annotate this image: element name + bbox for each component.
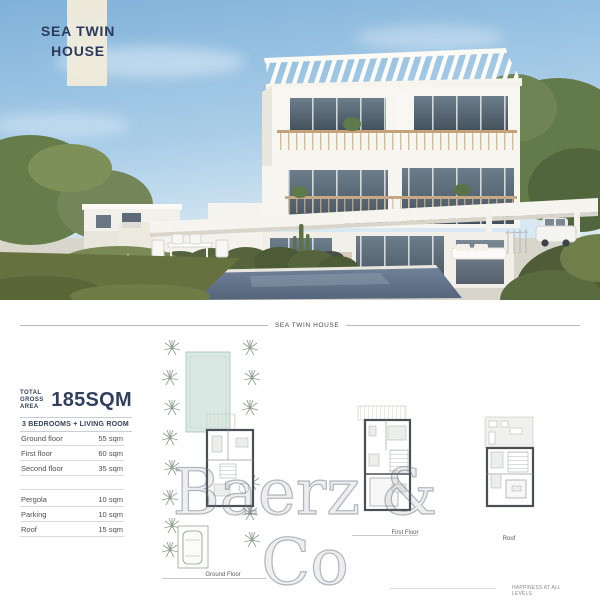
header-rule-left	[20, 325, 268, 326]
plan-roof-terrace	[485, 417, 533, 448]
plan-house-footprint	[207, 430, 253, 506]
ground-floor-plan	[162, 338, 266, 572]
balcony-rail	[277, 130, 517, 133]
footer-rule	[390, 588, 496, 589]
area-row-label: Pergola	[21, 495, 47, 504]
ground-floor-dim-line	[162, 578, 266, 579]
plan-roof-walls	[487, 448, 533, 506]
section-header-text: SEA TWIN HOUSE	[275, 322, 339, 329]
area-row-value: 55 sqm	[98, 434, 123, 443]
area-row-label: Parking	[21, 510, 46, 519]
villa-photo: SEA TWIN HOUSE	[0, 0, 600, 300]
area-row-label: First floor	[21, 449, 52, 458]
area-row: Second floor 35 sqm	[20, 461, 124, 476]
area-row: Parking 10 sqm	[20, 507, 124, 522]
photo-title-line2: HOUSE	[19, 41, 137, 61]
area-row: First floor 60 sqm	[20, 446, 124, 461]
roof-label: Roof	[489, 536, 529, 542]
total-gross-area-value: 185SQM	[51, 389, 132, 412]
area-table-main-rows: Ground floor 55 sqm First floor 60 sqm S…	[20, 431, 124, 476]
grass	[0, 252, 240, 300]
brochure-page: SEA TWIN HOUSE SEA TWIN HOUSE TOTAL GROS…	[0, 0, 600, 600]
area-row-value: 35 sqm	[98, 464, 123, 473]
area-row-value: 15 sqm	[98, 525, 123, 534]
photo-title: SEA TWIN HOUSE	[19, 21, 137, 61]
area-row: Roof 15 sqm	[20, 522, 124, 537]
total-gross-area: TOTAL GROSS AREA 185SQM	[20, 389, 132, 412]
first-floor-plan	[352, 402, 418, 528]
plan-terrace	[207, 414, 235, 430]
area-table-extra-rows: Pergola 10 sqm Parking 10 sqm Roof 15 sq…	[20, 492, 124, 537]
section-header: SEA TWIN HOUSE	[20, 322, 580, 329]
first-floor-dim-line	[352, 535, 418, 536]
plan-pergola	[358, 406, 406, 420]
header-rule-right	[346, 325, 580, 326]
area-row-label: Roof	[21, 525, 37, 534]
roof-plan	[480, 412, 538, 516]
total-gross-area-label: TOTAL GROSS AREA	[20, 390, 44, 411]
area-table: Ground floor 55 sqm First floor 60 sqm S…	[20, 431, 124, 537]
plan-parking	[178, 526, 208, 568]
area-row-value: 10 sqm	[98, 495, 123, 504]
area-row-value: 60 sqm	[98, 449, 123, 458]
bedrooms-subtitle: 3 BEDROOMS + LIVING ROOM	[20, 417, 132, 432]
photo-title-line1: SEA TWIN	[19, 21, 137, 41]
area-row: Pergola 10 sqm	[20, 492, 124, 507]
plan-first-walls	[365, 420, 410, 510]
area-row: Ground floor 55 sqm	[20, 431, 124, 446]
spec-block: TOTAL GROSS AREA 185SQM 3 BEDROOMS + LIV…	[20, 389, 132, 432]
footer-note: HAPPINESS AT ALL LEVELS	[512, 585, 582, 597]
table-divider	[20, 476, 124, 490]
area-row-value: 10 sqm	[98, 510, 123, 519]
area-row-label: Second floor	[21, 464, 63, 473]
area-row-label: Ground floor	[21, 434, 63, 443]
balcony-plant	[343, 117, 361, 131]
